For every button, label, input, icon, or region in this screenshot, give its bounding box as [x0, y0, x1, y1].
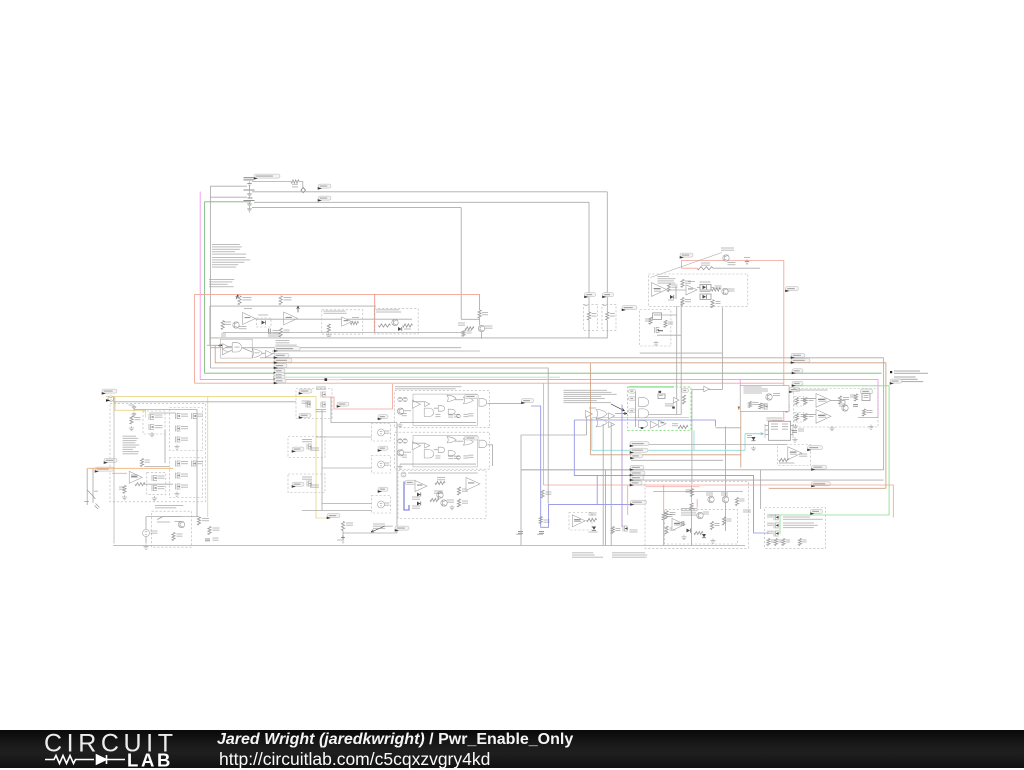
svg-text:LAB: LAB [127, 750, 173, 769]
